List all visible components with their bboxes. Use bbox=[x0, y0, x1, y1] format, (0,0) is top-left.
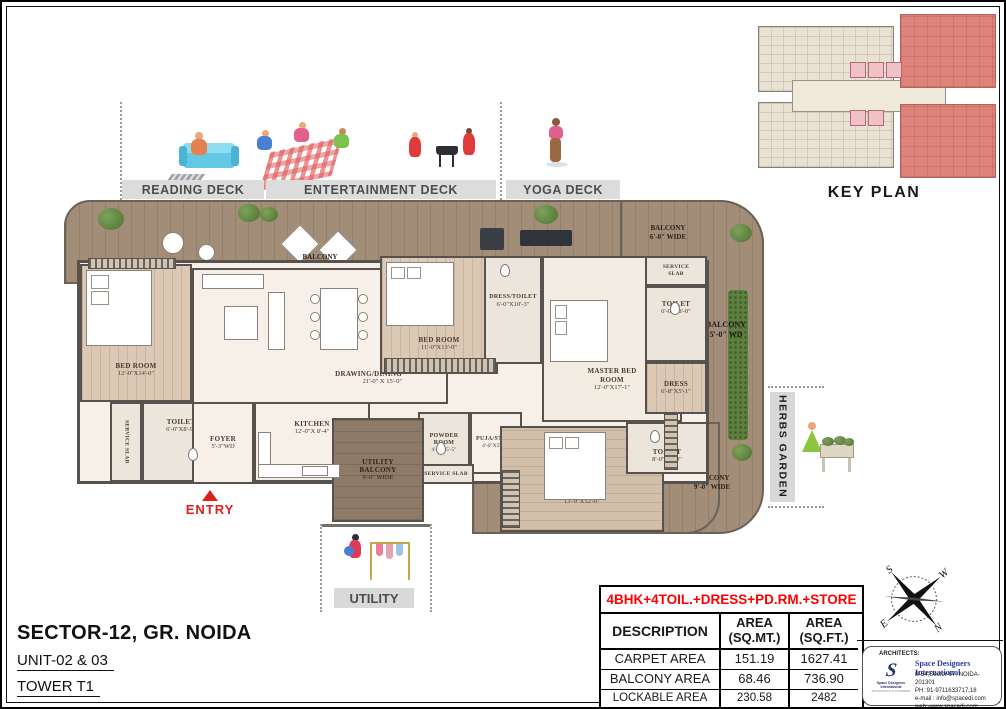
tower-number: TOWER T1 bbox=[17, 678, 100, 697]
kitchen-sink-icon bbox=[302, 466, 328, 476]
key-plan-lift-icon bbox=[868, 62, 884, 78]
unit-number: UNIT-02 & 03 bbox=[17, 652, 114, 671]
toilet-fixture-icon bbox=[436, 442, 446, 455]
key-plan-lift-icon bbox=[886, 62, 902, 78]
wardrobe-icon bbox=[384, 358, 496, 373]
room-service-slab-left: SERVICE SLAB bbox=[110, 402, 142, 482]
wardrobe-icon bbox=[502, 470, 520, 528]
entry-marker: ENTRY bbox=[178, 490, 242, 517]
plant-icon bbox=[732, 444, 752, 461]
utility-panel: UTILITY bbox=[320, 524, 432, 612]
dining-chair-icon bbox=[310, 312, 320, 322]
architect-contact: B-34,Sector-67, NOIDA-201301 PH :91-9711… bbox=[915, 671, 999, 709]
project-location: SECTOR-12, GR. NOIDA bbox=[17, 622, 252, 645]
bed-icon bbox=[386, 262, 454, 326]
architect-phone: PH :91-9711633717,18 bbox=[915, 687, 999, 695]
entry-label: ENTRY bbox=[178, 502, 242, 517]
balcony-topright-label: BALCONY6'-0" WIDE bbox=[622, 224, 714, 242]
herbs-garden-illustration bbox=[800, 420, 856, 482]
toilet-fixture-icon bbox=[188, 448, 198, 461]
compass-rose-icon: S N W E bbox=[874, 560, 954, 638]
dining-chair-icon bbox=[310, 294, 320, 304]
reading-person-body bbox=[191, 139, 207, 155]
key-plan-lift-icon bbox=[868, 110, 884, 126]
bed-icon bbox=[86, 270, 152, 346]
architects-heading: ARCHITECTS: bbox=[879, 651, 920, 657]
toilet-fixture-icon bbox=[650, 430, 660, 443]
round-table-icon bbox=[162, 232, 184, 254]
svg-text:W: W bbox=[937, 566, 952, 582]
key-plan-highlight-unit-top bbox=[900, 14, 996, 88]
plant-icon bbox=[238, 204, 260, 222]
gym-equipment-icon bbox=[480, 228, 504, 250]
toilet-fixture-icon bbox=[500, 264, 510, 277]
round-table-icon bbox=[198, 244, 215, 261]
table-row-carpet-sqft: 1627.41 bbox=[790, 650, 858, 670]
herbs-divider-top bbox=[768, 386, 824, 388]
dining-chair-icon bbox=[358, 330, 368, 340]
title-block: SECTOR-12, GR. NOIDA UNIT-02 & 03 TOWER … bbox=[17, 622, 252, 697]
utility-illustration bbox=[340, 534, 416, 582]
dining-chair-icon bbox=[310, 330, 320, 340]
bed-icon bbox=[550, 300, 608, 362]
col-header-sqft: AREA(SQ.FT.) bbox=[790, 614, 858, 650]
utility-top-rule bbox=[322, 524, 430, 527]
table-row-carpet-label: CARPET AREA bbox=[601, 650, 721, 670]
table-row-lockable-sqmt: 230.58 bbox=[721, 690, 790, 708]
room-toilet-2: TOILET 6'-0"X8'-0" bbox=[645, 286, 707, 362]
sofa-icon bbox=[202, 274, 264, 289]
reading-deck-illustration bbox=[169, 130, 249, 178]
table-row-balcony-label: BALCONY AREA bbox=[601, 670, 721, 690]
yoga-mat-icon bbox=[520, 230, 572, 246]
entertainment-deck-label: ENTERTAINMENT DECK bbox=[266, 180, 496, 199]
plant-icon bbox=[98, 208, 124, 230]
plant-icon bbox=[534, 205, 558, 224]
room-service-slab-top: SERVICE SLAB bbox=[645, 256, 707, 286]
svg-text:S: S bbox=[884, 563, 896, 576]
table-row-lockable-label: LOCKABLE AREA bbox=[601, 690, 721, 708]
yoga-deck-illustration bbox=[534, 116, 584, 178]
svg-text:N: N bbox=[931, 621, 946, 636]
table-row-balcony-sqmt: 68.46 bbox=[721, 670, 790, 690]
herbs-garden-label: HERBS GARDEN bbox=[770, 392, 795, 502]
table-row-carpet-sqmt: 151.19 bbox=[721, 650, 790, 670]
room-foyer: FOYER 5'-3"WD bbox=[192, 402, 254, 482]
amenity-deck-strip: READING DECK ENTERTAINMENT DECK YOGA DEC… bbox=[114, 102, 626, 200]
room-service-slab-bottom: SERVICE SLAB bbox=[418, 464, 474, 484]
architect-card: ARCHITECTS: S Space Designers Internatio… bbox=[862, 646, 1002, 706]
key-plan-lift-icon bbox=[850, 62, 866, 78]
dining-chair-icon bbox=[358, 312, 368, 322]
key-plan-lift-icon bbox=[850, 110, 866, 126]
herbs-divider-bottom bbox=[768, 506, 824, 508]
bbq-grill-icon bbox=[436, 146, 458, 155]
table-row-balcony-sqft: 736.90 bbox=[790, 670, 858, 690]
entry-arrow-icon bbox=[202, 490, 218, 501]
architect-web: web:-www.spacedi.com bbox=[915, 703, 999, 709]
wardrobe-icon bbox=[664, 414, 678, 470]
architect-logo: S Space Designers International ARCHITEC… bbox=[871, 661, 911, 693]
dining-chair-icon bbox=[358, 294, 368, 304]
entertainment-deck-illustration bbox=[244, 122, 494, 182]
sofa-icon bbox=[268, 292, 285, 350]
ledge-hatch bbox=[88, 258, 176, 269]
toilet-fixture-icon bbox=[670, 302, 680, 315]
architect-address: B-34,Sector-67, NOIDA-201301 bbox=[915, 671, 999, 687]
key-plan-highlight-unit-bottom bbox=[900, 104, 996, 178]
plant-icon bbox=[730, 224, 752, 242]
col-header-sqmt: AREA(SQ.MT.) bbox=[721, 614, 790, 650]
hedge-icon bbox=[728, 290, 748, 440]
reading-deck-label: READING DECK bbox=[122, 180, 264, 199]
bed-icon bbox=[544, 432, 606, 500]
key-plan-title: KEY PLAN bbox=[750, 184, 998, 202]
architect-email: e-mail : info@spacedi.com bbox=[915, 695, 999, 703]
footer-divider bbox=[857, 640, 1003, 641]
rug-icon bbox=[224, 306, 258, 340]
dining-table-icon bbox=[320, 288, 358, 350]
deck-divider-right bbox=[500, 102, 502, 200]
room-dress: DRESS 6'-8"X5'-1" bbox=[645, 362, 707, 414]
unit-configuration: 4BHK+4TOIL.+DRESS+PD.RM.+STORE bbox=[601, 587, 862, 614]
room-utility-balcony: UTILITY BALCONY 6'-0" WIDE bbox=[332, 418, 424, 522]
area-statement-table: 4BHK+4TOIL.+DRESS+PD.RM.+STORE DESCRIPTI… bbox=[599, 585, 864, 709]
utility-label: UTILITY bbox=[334, 588, 414, 608]
drawing-sheet: READING DECK ENTERTAINMENT DECK YOGA DEC… bbox=[0, 0, 1006, 709]
svg-text:E: E bbox=[877, 617, 891, 631]
room-dress-toilet: DRESS/TOILET 6'-0"X10'-3" bbox=[484, 256, 542, 364]
plant-icon bbox=[260, 207, 278, 222]
col-header-description: DESCRIPTION bbox=[601, 614, 721, 650]
yoga-deck-label: YOGA DECK bbox=[506, 180, 620, 199]
key-plan bbox=[750, 10, 998, 182]
table-row-lockable-sqft: 2482 bbox=[790, 690, 858, 708]
